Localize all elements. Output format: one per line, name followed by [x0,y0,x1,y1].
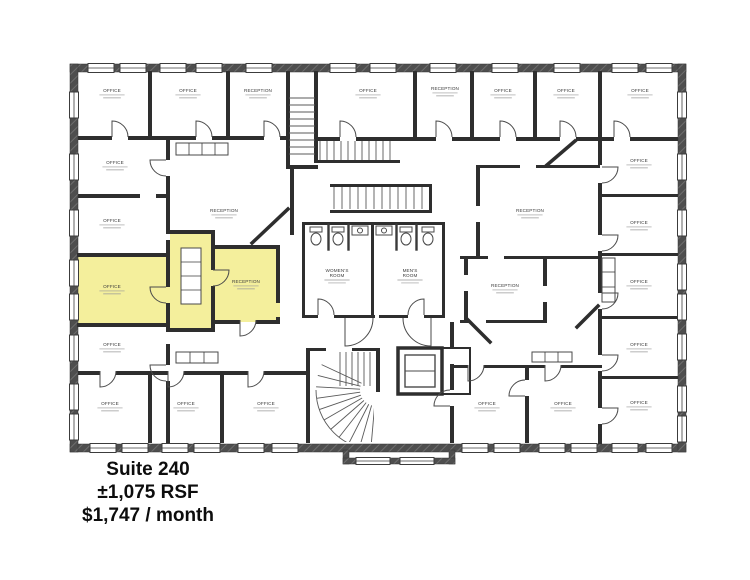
room-label: OFFICE [97,401,122,411]
svg-text:OFFICE: OFFICE [177,401,195,406]
floor-plan-page: OFFICEOFFICERECEPTIONOFFICERECEPTIONOFFI… [0,0,750,580]
door-arc [560,121,576,137]
suite-name: Suite 240 [58,458,238,481]
svg-text:OFFICE: OFFICE [257,401,275,406]
door-arc [403,318,431,346]
room-label: OFFICE [626,279,651,289]
room-label: OFFICE [102,160,127,170]
room-label: OFFICE [474,401,499,411]
stall-wall [396,224,397,250]
svg-text:OFFICE: OFFICE [494,88,512,93]
stall-wall [348,224,349,250]
room-label: OFFICE [253,401,278,411]
door-arc [500,121,516,137]
interior-walls [77,71,678,444]
svg-text:OFFICE: OFFICE [557,88,575,93]
svg-text:OFFICE: OFFICE [631,88,649,93]
room-label: RECEPTION [516,208,544,218]
service-room [442,348,470,394]
room-label: RECEPTION [431,86,459,96]
svg-text:RECEPTION: RECEPTION [210,208,238,213]
svg-text:OFFICE: OFFICE [630,279,648,284]
svg-text:OFFICE: OFFICE [179,88,197,93]
door-arc [545,365,561,381]
door-arc [100,371,116,387]
door-arc [436,121,452,137]
svg-text:OFFICE: OFFICE [554,401,572,406]
svg-text:WOMEN'S: WOMEN'S [325,268,348,273]
door-arc [345,318,373,346]
door-arc [196,121,212,137]
door-arc [240,320,256,336]
svg-text:RECEPTION: RECEPTION [431,86,459,91]
svg-text:OFFICE: OFFICE [359,88,377,93]
svg-text:OFFICE: OFFICE [103,284,121,289]
door-arc [318,299,334,315]
door-arc [602,167,618,183]
room-label: RECEPTION [210,208,238,218]
svg-text:ROOM: ROOM [330,273,345,278]
room-label: OFFICE [175,88,200,98]
door-arc [150,160,166,176]
room-label: OFFICE [553,88,578,98]
room-label: OFFICE [99,218,124,228]
svg-text:OFFICE: OFFICE [103,218,121,223]
room-label: OFFICE [626,158,651,168]
room-label: OFFICE [173,401,198,411]
door-arc [614,121,630,137]
room-label: RECEPTION [244,88,272,98]
door-arc [168,371,184,387]
room-label: OFFICE [550,401,575,411]
room-label: OFFICE [627,88,652,98]
svg-text:RECEPTION: RECEPTION [491,283,519,288]
svg-text:OFFICE: OFFICE [478,401,496,406]
svg-text:RECEPTION: RECEPTION [516,208,544,213]
svg-text:OFFICE: OFFICE [630,342,648,347]
door-arc [602,235,618,251]
listing-text: Suite 240 ±1,075 RSF $1,747 / month [58,458,238,527]
suite-price: $1,747 / month [58,504,238,527]
room-label: OFFICE [626,220,651,230]
svg-text:OFFICE: OFFICE [103,342,121,347]
room-label: OFFICE [626,400,651,410]
svg-text:RECEPTION: RECEPTION [232,279,260,284]
stall-wall [328,224,329,250]
suite-size: ±1,075 RSF [58,481,238,504]
room-label: OFFICE [355,88,380,98]
elevator [398,348,470,394]
door-arc [264,121,280,137]
svg-text:OFFICE: OFFICE [630,400,648,405]
svg-text:OFFICE: OFFICE [630,158,648,163]
door-arc [509,380,525,396]
door-arc [340,121,356,137]
svg-text:OFFICE: OFFICE [106,160,124,165]
room-label: OFFICE [99,88,124,98]
door-arc [602,408,618,424]
svg-text:OFFICE: OFFICE [103,88,121,93]
svg-text:RECEPTION: RECEPTION [244,88,272,93]
svg-text:OFFICE: OFFICE [101,401,119,406]
room-label: RECEPTION [491,283,519,293]
door-arc [248,371,264,387]
room-label: WOMEN'SROOM [324,268,349,283]
svg-text:MEN'S: MEN'S [403,268,418,273]
room-label: OFFICE [490,88,515,98]
room-label: MEN'SROOM [397,268,422,283]
room-label: OFFICE [99,342,124,352]
svg-text:ROOM: ROOM [403,273,418,278]
door-arc [112,121,128,137]
stall-wall [416,224,417,250]
room-label: OFFICE [626,342,651,352]
door-arc [408,299,424,315]
door-arc [602,355,618,371]
svg-text:OFFICE: OFFICE [630,220,648,225]
